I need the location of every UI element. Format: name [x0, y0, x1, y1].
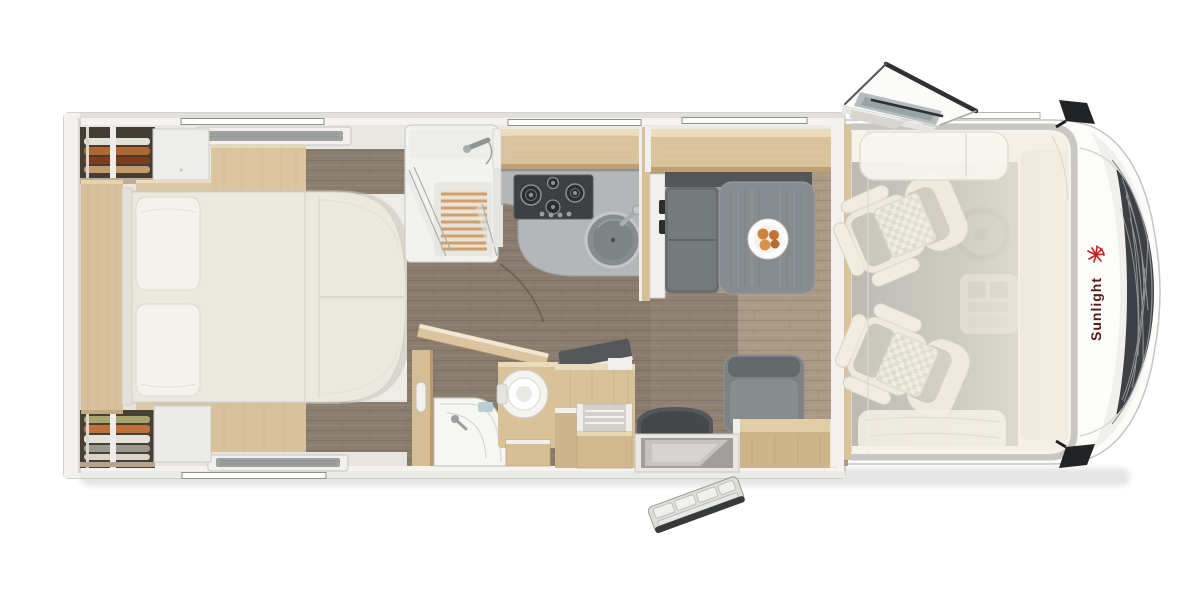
- svg-text:Sunlight: Sunlight: [1088, 277, 1104, 341]
